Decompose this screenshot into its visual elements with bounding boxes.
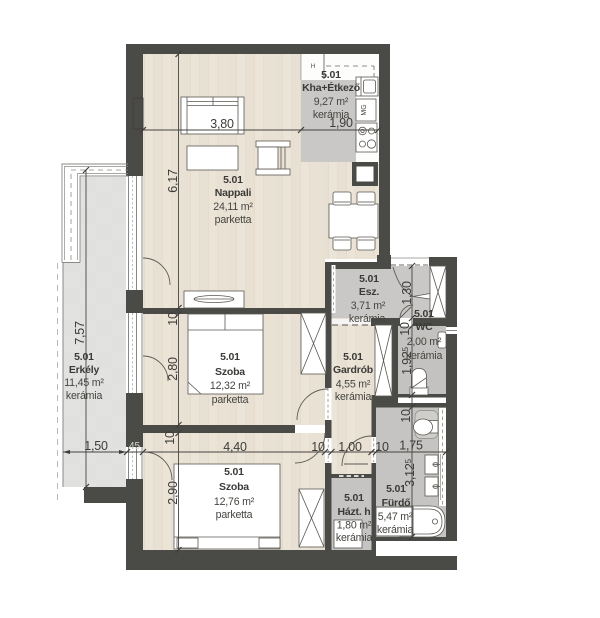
svg-text:kerámia: kerámia bbox=[377, 524, 414, 536]
svg-text:3,80: 3,80 bbox=[210, 117, 234, 131]
svg-text:10: 10 bbox=[163, 431, 177, 445]
svg-text:kerámia: kerámia bbox=[313, 109, 350, 121]
svg-text:1,80 m²: 1,80 m² bbox=[337, 520, 372, 532]
svg-text:11,45 m²: 11,45 m² bbox=[64, 377, 104, 389]
svg-text:4,55 m²: 4,55 m² bbox=[336, 379, 371, 391]
svg-text:7,57: 7,57 bbox=[73, 321, 87, 345]
svg-text:12,32 m²: 12,32 m² bbox=[210, 380, 251, 392]
svg-text:parketta: parketta bbox=[216, 509, 253, 521]
svg-text:3,71 m²: 3,71 m² bbox=[351, 300, 386, 312]
svg-text:kerámia: kerámia bbox=[406, 350, 443, 362]
svg-text:10: 10 bbox=[398, 322, 412, 336]
svg-text:5.01: 5.01 bbox=[343, 351, 363, 363]
svg-text:5.01: 5.01 bbox=[321, 69, 341, 81]
svg-text:5.01: 5.01 bbox=[359, 273, 379, 285]
svg-text:9,27 m²: 9,27 m² bbox=[314, 96, 349, 108]
svg-text:parketta: parketta bbox=[215, 214, 252, 226]
svg-text:4,40: 4,40 bbox=[223, 440, 247, 454]
svg-text:MG: MG bbox=[361, 104, 368, 115]
svg-text:kerámia: kerámia bbox=[66, 390, 103, 402]
svg-text:1,30: 1,30 bbox=[400, 281, 414, 305]
svg-text:Nappali: Nappali bbox=[215, 187, 252, 199]
svg-text:5.01: 5.01 bbox=[220, 351, 240, 363]
svg-text:Kha+Étkező: Kha+Étkező bbox=[302, 81, 360, 94]
svg-text:Gardrób: Gardrób bbox=[333, 364, 373, 376]
svg-text:10: 10 bbox=[399, 409, 413, 423]
svg-text:5.01: 5.01 bbox=[223, 174, 243, 186]
svg-text:kerámia: kerámia bbox=[335, 391, 372, 403]
svg-text:kerámia: kerámia bbox=[336, 532, 373, 544]
svg-text:6,17: 6,17 bbox=[166, 169, 180, 193]
svg-text:parketta: parketta bbox=[212, 394, 249, 406]
svg-text:2,00 m²: 2,00 m² bbox=[407, 336, 442, 348]
svg-text:10: 10 bbox=[311, 440, 325, 454]
svg-text:Erkély: Erkély bbox=[69, 364, 100, 376]
svg-text:24,11 m²: 24,11 m² bbox=[213, 201, 253, 213]
svg-text:Szoba: Szoba bbox=[215, 366, 245, 378]
svg-text:2,80: 2,80 bbox=[166, 357, 180, 381]
svg-text:WC: WC bbox=[415, 321, 433, 333]
svg-text:5,47 m²: 5,47 m² bbox=[378, 511, 413, 523]
svg-text:1,00: 1,00 bbox=[338, 440, 362, 454]
svg-text:5.01: 5.01 bbox=[344, 492, 364, 504]
svg-text:Esz.: Esz. bbox=[359, 286, 379, 298]
svg-text:Házt. h: Házt. h bbox=[337, 506, 370, 518]
svg-text:H: H bbox=[311, 63, 316, 70]
svg-text:10: 10 bbox=[375, 440, 389, 454]
svg-text:5.01: 5.01 bbox=[74, 351, 94, 363]
svg-text:5.01: 5.01 bbox=[414, 308, 434, 320]
svg-text:1,75: 1,75 bbox=[399, 439, 423, 453]
svg-text:10: 10 bbox=[166, 312, 180, 326]
svg-text:5.01: 5.01 bbox=[386, 483, 406, 495]
svg-text:2,90: 2,90 bbox=[166, 481, 180, 505]
svg-text:45: 45 bbox=[129, 441, 141, 452]
svg-text:5.01: 5.01 bbox=[224, 466, 244, 478]
svg-text:1,50: 1,50 bbox=[84, 439, 108, 453]
svg-text:Fürdő: Fürdő bbox=[382, 497, 411, 509]
svg-text:Szoba: Szoba bbox=[219, 481, 249, 493]
svg-text:kerámia: kerámia bbox=[349, 313, 386, 325]
svg-text:12,76 m²: 12,76 m² bbox=[214, 496, 255, 508]
